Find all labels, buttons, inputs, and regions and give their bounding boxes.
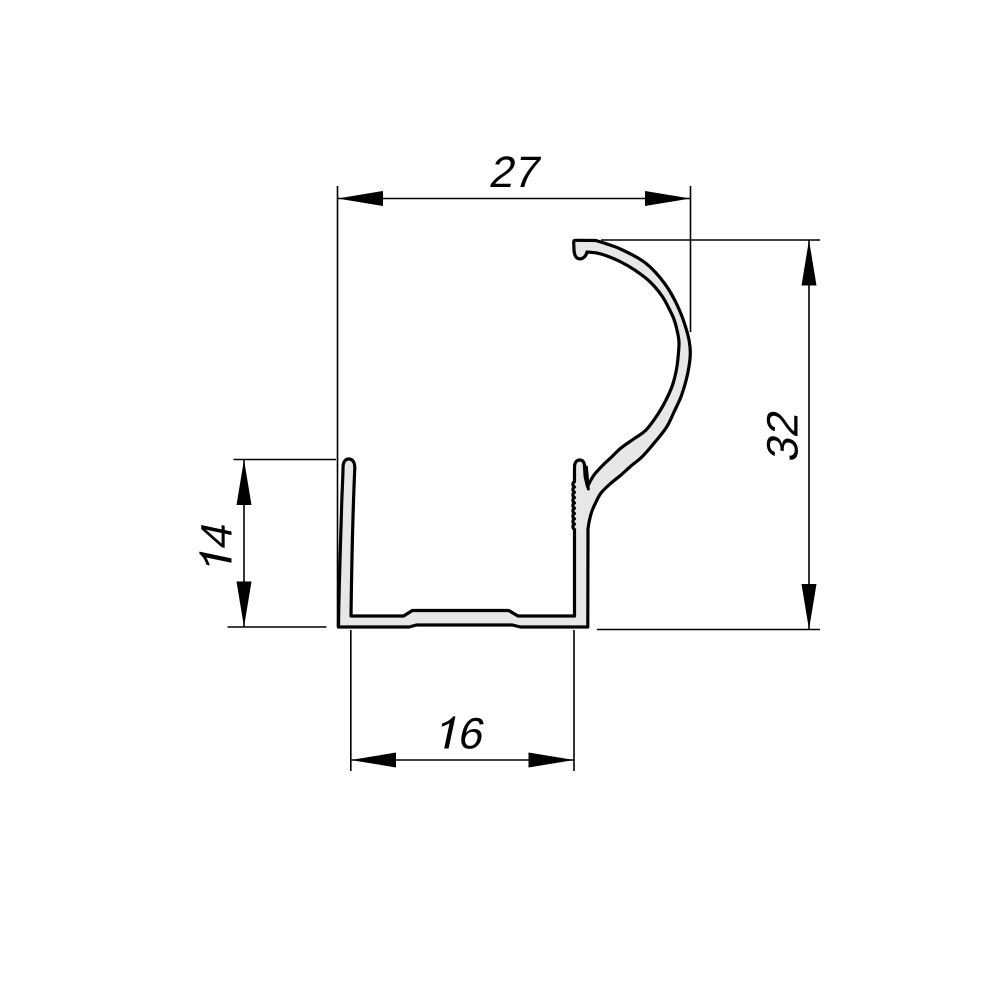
svg-text:6: 6 [454, 710, 489, 758]
svg-text:32: 32 [759, 406, 807, 465]
svg-text:27: 27 [486, 148, 545, 196]
svg-text:4: 4 [193, 518, 241, 553]
